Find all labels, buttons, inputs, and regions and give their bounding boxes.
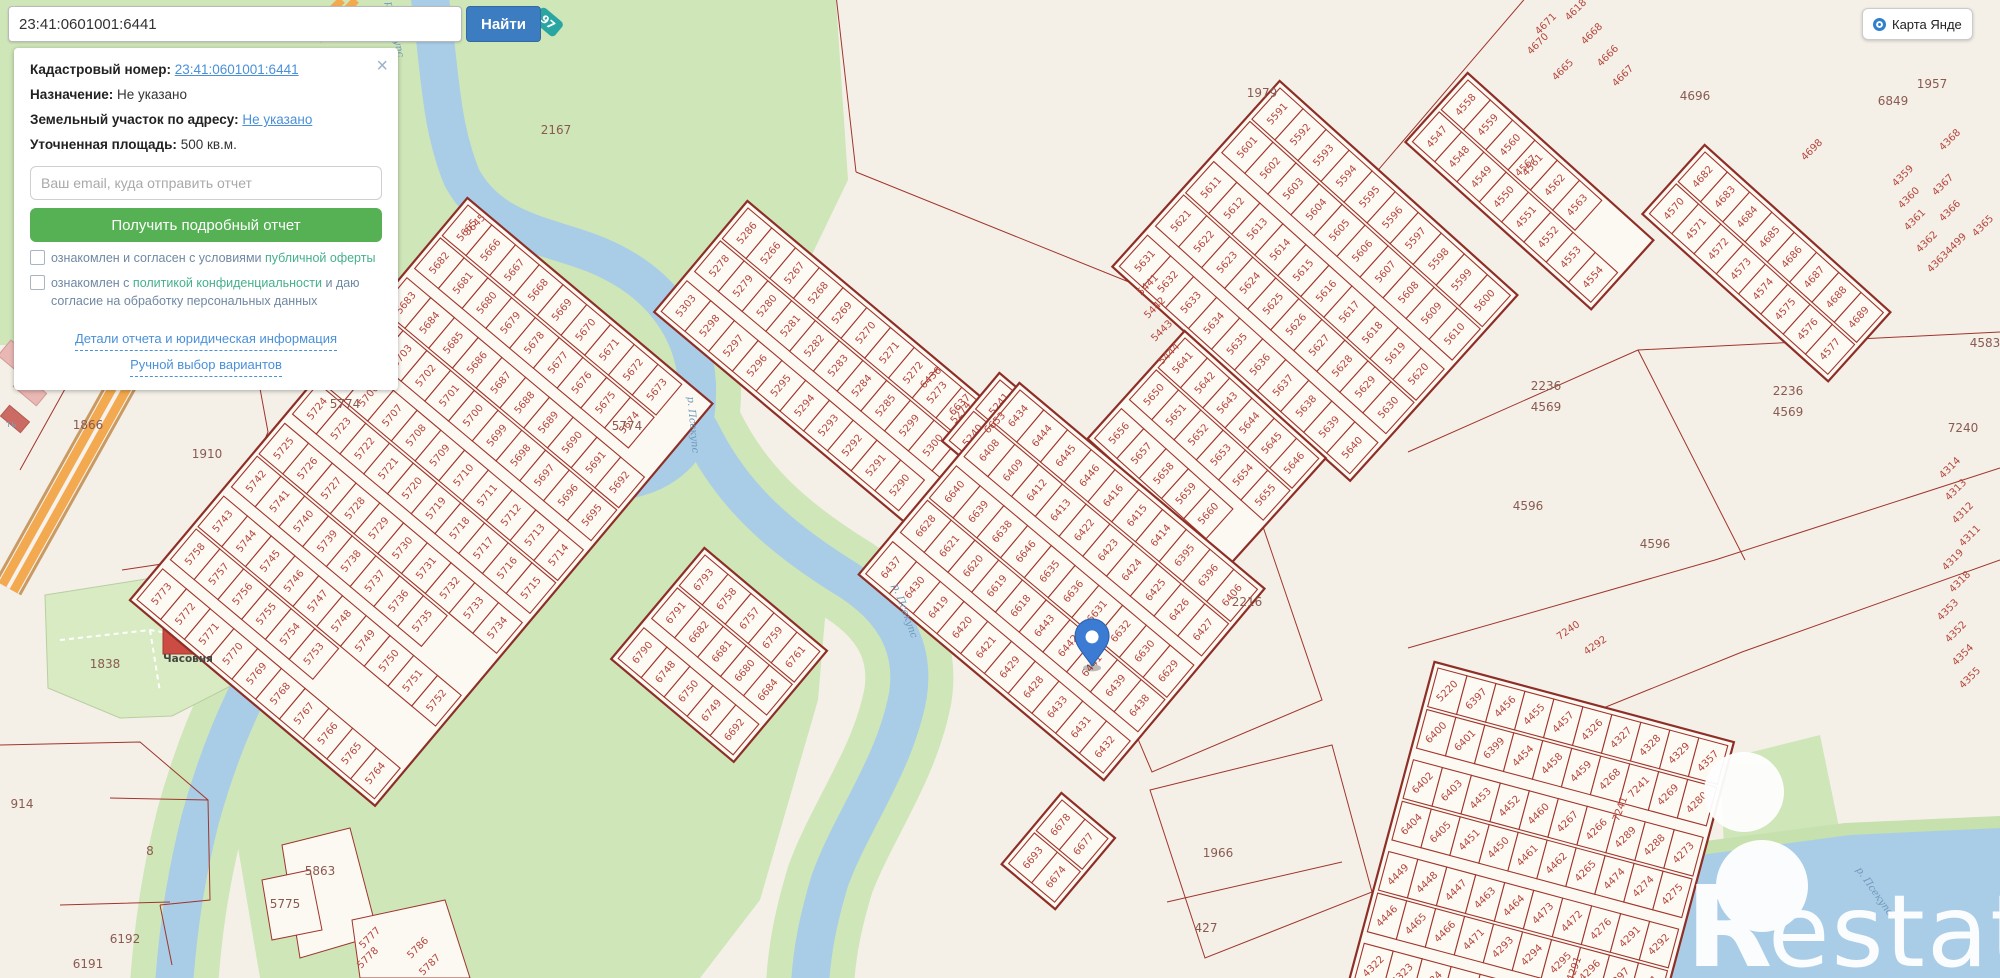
map-label: 4596 bbox=[1513, 499, 1544, 513]
offer-consent-checkbox[interactable] bbox=[30, 250, 45, 265]
get-report-button[interactable]: Получить подробный отчет bbox=[30, 208, 382, 242]
map-label: 914 bbox=[11, 797, 34, 811]
map-label: 1966 bbox=[1203, 846, 1234, 860]
search-input[interactable] bbox=[8, 6, 462, 42]
map-label: 2167 bbox=[541, 123, 572, 137]
email-field[interactable] bbox=[30, 166, 382, 200]
watermark-initial: R bbox=[1686, 863, 1772, 978]
map-label: 1910 bbox=[192, 447, 223, 461]
map-label: 4569 bbox=[1531, 400, 1562, 414]
radio-selected-icon bbox=[1873, 18, 1886, 31]
area-label: Уточненная площадь: bbox=[30, 137, 177, 152]
map-label: 6191 bbox=[73, 957, 104, 971]
privacy-consent-text: ознакомлен с bbox=[51, 276, 129, 290]
map-label: 1957 bbox=[1917, 77, 1948, 91]
privacy-policy-link[interactable]: политикой конфиденциальности bbox=[133, 276, 322, 290]
area-value: 500 кв.м. bbox=[181, 137, 237, 152]
map-label: 5774 bbox=[330, 397, 361, 411]
cadastral-number-link[interactable]: 23:41:0601001:6441 bbox=[175, 62, 299, 77]
map-label: 1866 bbox=[73, 418, 104, 432]
privacy-consent-checkbox[interactable] bbox=[30, 275, 45, 290]
map-label: 427 bbox=[1195, 921, 1218, 935]
map-layer-switch[interactable]: Карта Янде bbox=[1862, 8, 1973, 40]
map-label: 1838 bbox=[90, 657, 121, 671]
parcel-info-panel: × Кадастровый номер: 23:41:0601001:6441 … bbox=[14, 48, 398, 390]
map-label: 4583 bbox=[1970, 336, 2000, 350]
purpose-label: Назначение: bbox=[30, 87, 113, 102]
map-label: 2216 bbox=[1232, 595, 1263, 609]
layer-label: Карта Янде bbox=[1892, 17, 1962, 32]
address-link[interactable]: Не указано bbox=[242, 112, 312, 127]
manual-select-link[interactable]: Ручной выбор вариантов bbox=[130, 355, 282, 377]
address-row: Земельный участок по адресу: Не указано bbox=[30, 112, 382, 127]
purpose-row: Назначение: Не указано bbox=[30, 87, 382, 102]
report-details-link[interactable]: Детали отчета и юридическая информация bbox=[75, 329, 337, 351]
map-label: 4696 bbox=[1680, 89, 1711, 103]
map-label: 7240 bbox=[1948, 421, 1979, 435]
privacy-consent-row: ознакомлен с политикой конфиденциальност… bbox=[30, 274, 382, 310]
cadastral-number-label: Кадастровый номер: bbox=[30, 62, 171, 77]
map-label: 2236 bbox=[1531, 379, 1562, 393]
map-label: Часовня bbox=[163, 653, 213, 665]
purpose-value: Не указано bbox=[117, 87, 187, 102]
map-label: 6192 bbox=[110, 932, 141, 946]
search-icon bbox=[8, 6, 22, 20]
map-label: 4569 bbox=[1773, 405, 1804, 419]
search-button[interactable]: Найти bbox=[466, 6, 541, 42]
map-label: 4596 bbox=[1640, 537, 1671, 551]
public-offer-link[interactable]: публичной оферты bbox=[265, 251, 375, 265]
map-label: ть bbox=[6, 420, 17, 430]
cadastral-map-app: 5665566656675668566956705671567256735682… bbox=[0, 0, 2000, 978]
close-icon[interactable]: × bbox=[376, 56, 388, 76]
watermark-text: estate bbox=[1768, 873, 2000, 978]
offer-consent-row: ознакомлен и согласен с условиями публич… bbox=[30, 249, 382, 267]
map-label: 5863 bbox=[305, 864, 336, 878]
map-label: 6849 bbox=[1878, 94, 1909, 108]
panel-footer-links: Детали отчета и юридическая информация Р… bbox=[30, 326, 382, 377]
area-row: Уточненная площадь: 500 кв.м. bbox=[30, 137, 382, 152]
cadastral-number-row: Кадастровый номер: 23:41:0601001:6441 bbox=[30, 62, 382, 77]
map-label: 5774 bbox=[612, 419, 643, 433]
map-label: 2236 bbox=[1773, 384, 1804, 398]
map-label: 8 bbox=[146, 844, 154, 858]
search-bar: Найти bbox=[8, 6, 541, 42]
offer-consent-text: ознакомлен и согласен с условиями bbox=[51, 251, 262, 265]
address-label: Земельный участок по адресу: bbox=[30, 112, 239, 127]
search-button-label: Найти bbox=[481, 16, 526, 33]
map-label: 1979 bbox=[1247, 86, 1278, 100]
map-label: 5775 bbox=[270, 897, 301, 911]
